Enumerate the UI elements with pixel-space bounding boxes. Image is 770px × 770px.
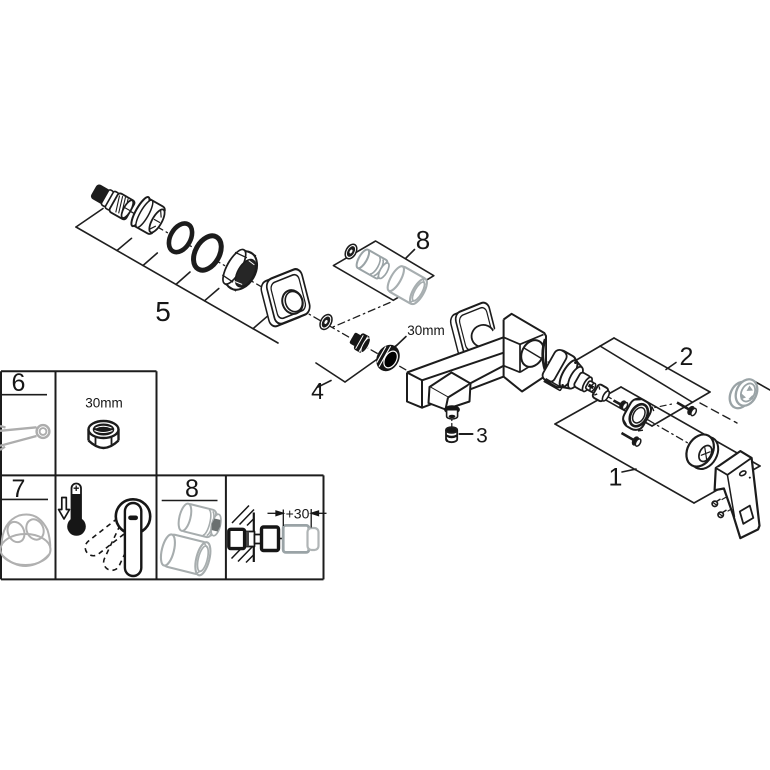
svg-text:6: 6 [12, 369, 26, 397]
svg-text:+30: +30 [286, 506, 310, 522]
svg-text:30mm: 30mm [407, 323, 445, 338]
svg-text:5: 5 [155, 296, 171, 327]
svg-text:4: 4 [311, 378, 324, 404]
svg-text:3: 3 [476, 425, 488, 448]
svg-text:30mm: 30mm [85, 396, 123, 411]
svg-text:8: 8 [416, 225, 430, 255]
svg-text:1: 1 [609, 464, 623, 492]
svg-text:7: 7 [12, 475, 26, 503]
svg-text:8: 8 [185, 475, 199, 503]
svg-text:2: 2 [680, 343, 694, 371]
